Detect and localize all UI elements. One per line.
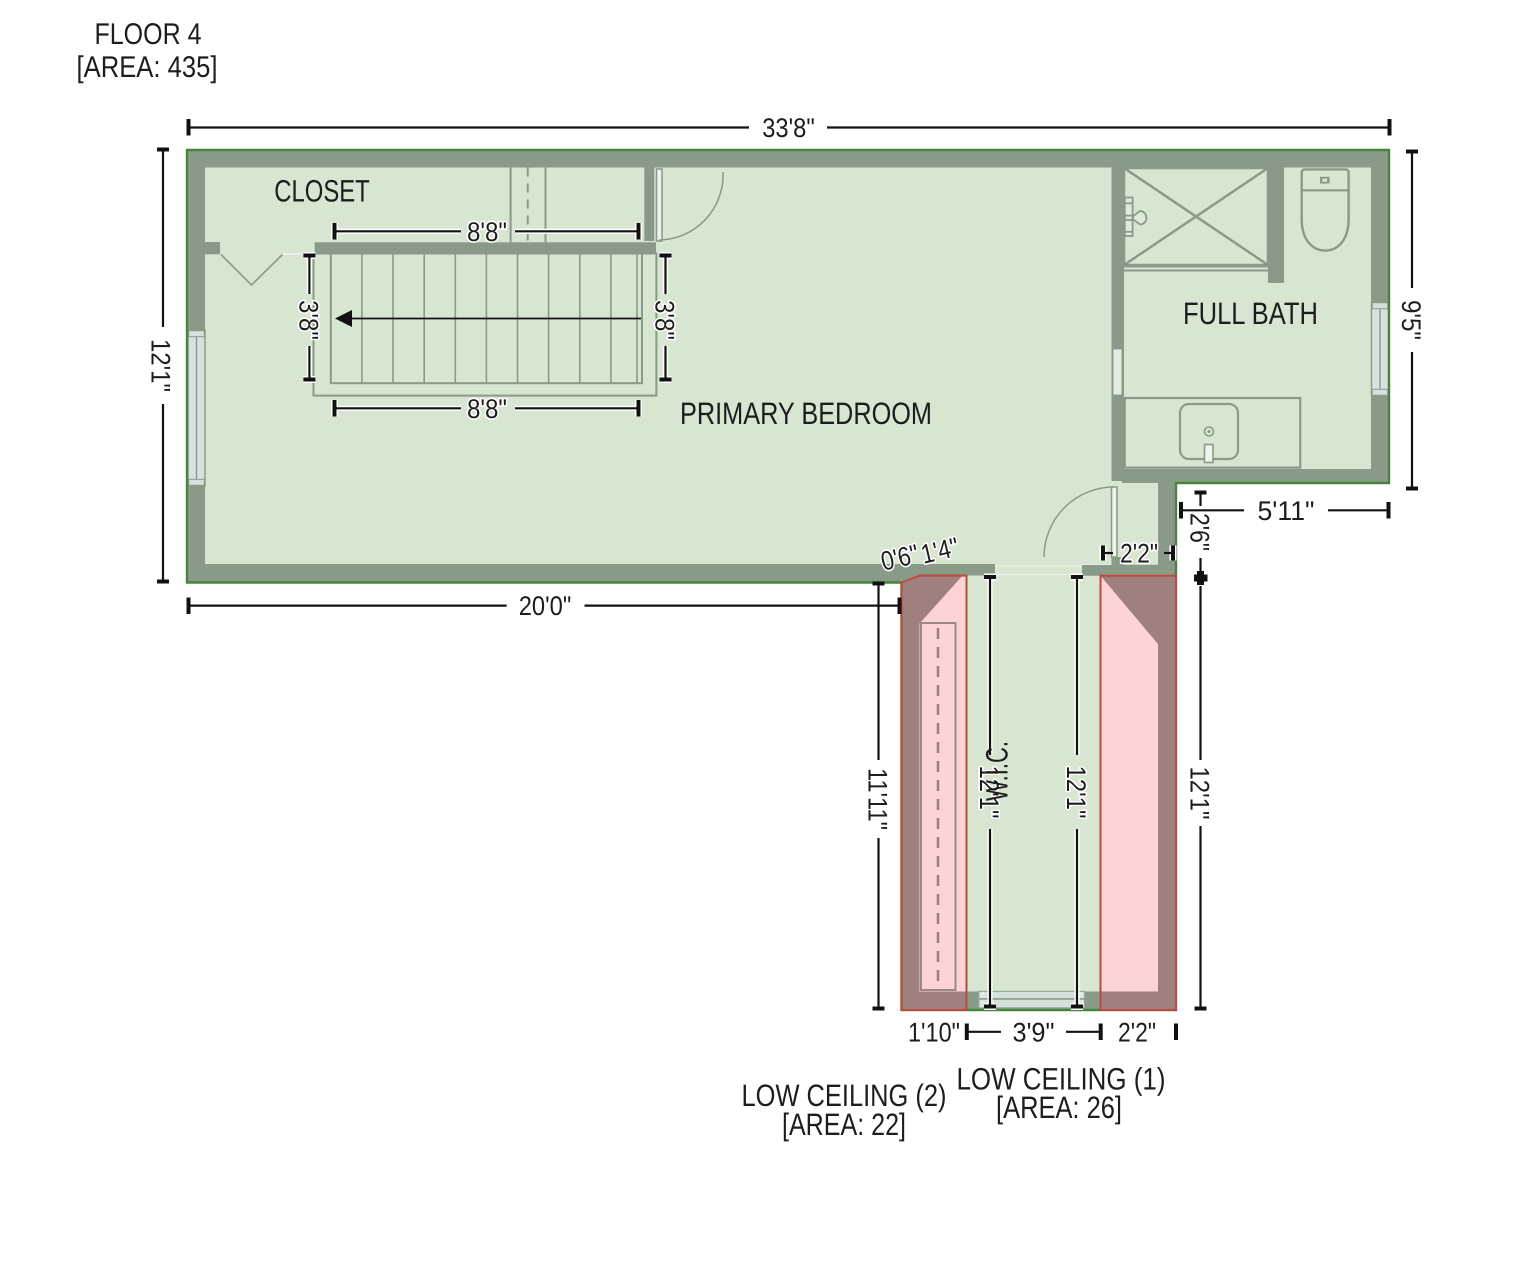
svg-text:11'11": 11'11" [863, 768, 893, 830]
svg-text:8'8": 8'8" [467, 217, 507, 247]
svg-text:FLOOR 4: FLOOR 4 [95, 18, 202, 51]
svg-text:1'10": 1'10" [908, 1018, 960, 1048]
svg-text:3'8": 3'8" [650, 300, 680, 340]
svg-text:[AREA: 435]: [AREA: 435] [77, 51, 218, 84]
svg-text:20'0": 20'0" [519, 591, 572, 621]
svg-text:9'5": 9'5" [1396, 300, 1426, 340]
svg-text:FULL BATH: FULL BATH [1183, 296, 1318, 331]
svg-text:5'11": 5'11" [1258, 496, 1315, 526]
svg-text:33'8": 33'8" [762, 113, 815, 143]
svg-text:12'1": 12'1" [146, 339, 176, 392]
svg-text:12'1": 12'1" [1061, 766, 1091, 819]
svg-text:2'6": 2'6" [1185, 513, 1215, 551]
svg-text:W.I.C.: W.I.C. [980, 741, 1015, 801]
svg-text:2'2": 2'2" [1120, 539, 1158, 569]
svg-text:CLOSET: CLOSET [274, 174, 370, 209]
svg-text:3'8": 3'8" [294, 300, 324, 340]
svg-text:[AREA: 22]: [AREA: 22] [782, 1107, 906, 1142]
svg-text:12'1": 12'1" [1185, 767, 1215, 820]
svg-text:3'9": 3'9" [1013, 1018, 1055, 1048]
svg-text:[AREA: 26]: [AREA: 26] [996, 1090, 1122, 1125]
svg-text:8'8": 8'8" [467, 394, 507, 424]
svg-text:2'2": 2'2" [1118, 1018, 1156, 1048]
svg-text:PRIMARY BEDROOM: PRIMARY BEDROOM [680, 396, 932, 431]
